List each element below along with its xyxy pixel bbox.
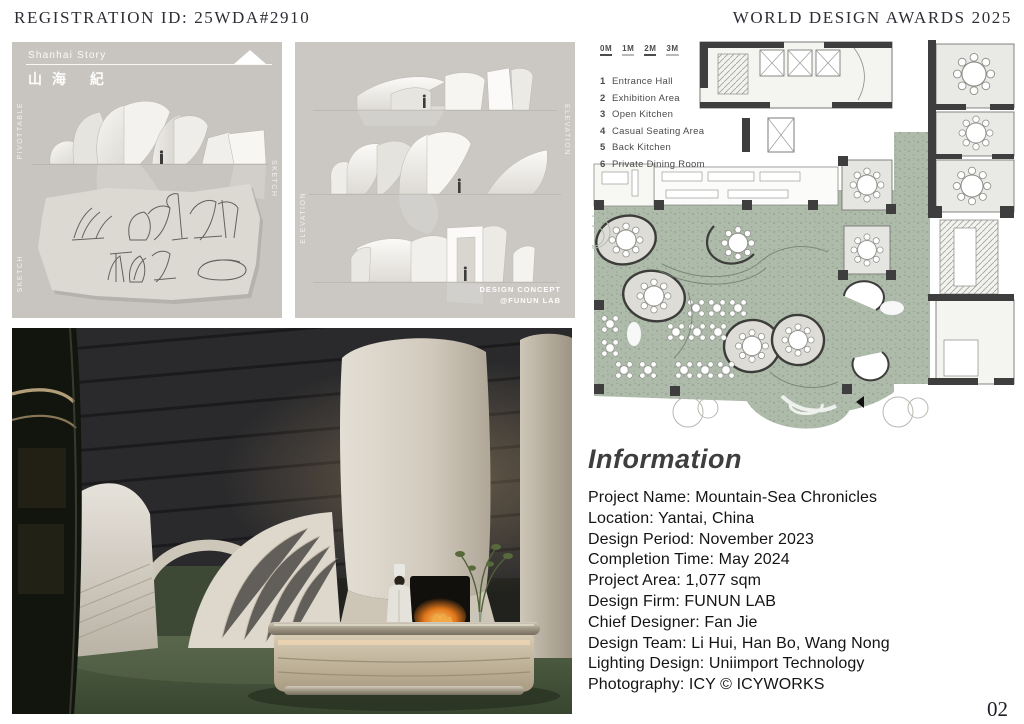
panel-label-pivottable: PIVOTTABLE: [17, 102, 24, 160]
plan-scale-bar: 0M 1M 2M 3M: [600, 44, 679, 56]
story-title: Shanhai Story: [28, 50, 106, 61]
panel-label-sketch-right: SKETCH: [270, 160, 277, 197]
scale-3m: 3M: [666, 44, 678, 56]
interior-photo-graphics: [12, 328, 572, 714]
information-heading: Information: [588, 444, 1018, 475]
plan-private-dining-rooms: [928, 40, 1014, 385]
interior-photo: [12, 328, 572, 714]
panel-label-elevation-left: ELEVATION: [300, 192, 307, 244]
legend-item-entrance-hall: 1 Entrance Hall: [600, 76, 705, 87]
plan-core-corridor: [700, 42, 892, 152]
registration-id: REGISTRATION ID: 25WDA#2910: [14, 8, 310, 28]
story-underline: [26, 64, 272, 65]
elevation-row-3: [351, 226, 535, 282]
legend-item-casual-seating: 4 Casual Seating Area: [600, 126, 705, 137]
legend-item-back-kitchen: 5 Back Kitchen: [600, 142, 705, 153]
floor-plan: 0M 1M 2M 3M 1 Entrance Hall 2 Exhibition…: [592, 40, 1016, 438]
information-section: Information Project Name: Mountain-Sea C…: [588, 444, 1018, 696]
info-lighting-design: Lighting Design: Uniimport Technology: [588, 654, 1018, 675]
info-project-area: Project Area: 1,077 sqm: [588, 571, 1018, 592]
elevation-row-1: [357, 68, 533, 110]
concept-model-forms: [50, 101, 266, 164]
design-credit: DESIGN CONCEPT @FUNUN LAB: [479, 284, 561, 306]
award-title: WORLD DESIGN AWARDS 2025: [733, 8, 1012, 28]
legend-item-exhibition-area: 2 Exhibition Area: [600, 93, 705, 104]
legend-item-open-kitchen: 3 Open Kitchen: [600, 109, 705, 120]
panel-label-elevation-right: ELEVATION: [563, 104, 570, 156]
plan-legend: 1 Entrance Hall 2 Exhibition Area 3 Open…: [600, 76, 705, 175]
elevation-panel-graphics: [295, 42, 575, 318]
info-project-name: Project Name: Mountain-Sea Chronicles: [588, 488, 1018, 509]
elevation-panel: ELEVATION ELEVATION DESIGN CONCEPT @FUNU…: [295, 42, 575, 318]
elevation-row-2: [331, 132, 548, 194]
credit-line-1: DESIGN CONCEPT: [479, 284, 561, 295]
page-number: 02: [987, 697, 1008, 722]
info-chief-designer: Chief Designer: Fan Jie: [588, 613, 1018, 634]
mountain-icon: [234, 50, 266, 64]
scale-2m: 2M: [644, 44, 656, 56]
photo-vignette: [12, 328, 572, 714]
scale-0m: 0M: [600, 44, 612, 56]
info-location: Location: Yantai, China: [588, 509, 1018, 530]
info-photography: Photography: ICY © ICYWORKS: [588, 675, 1018, 696]
concept-sketch-panel: Shanhai Story 山海 紀 PIVOTTABLE SKETCH SKE…: [12, 42, 282, 318]
presentation-board: REGISTRATION ID: 25WDA#2910 WORLD DESIGN…: [0, 0, 1024, 724]
info-design-period: Design Period: November 2023: [588, 530, 1018, 551]
scale-1m: 1M: [622, 44, 634, 56]
info-completion-time: Completion Time: May 2024: [588, 550, 1018, 571]
info-design-firm: Design Firm: FUNUN LAB: [588, 592, 1018, 613]
info-design-team: Design Team: Li Hui, Han Bo, Wang Nong: [588, 634, 1018, 655]
legend-item-private-dining: 6 Private Dining Room: [600, 159, 705, 170]
credit-line-2: @FUNUN LAB: [479, 295, 561, 306]
story-title-chinese: 山海 紀: [28, 69, 114, 89]
panel-label-sketch-left: SKETCH: [17, 255, 24, 292]
information-rows: Project Name: Mountain-Sea Chronicles Lo…: [588, 488, 1018, 696]
